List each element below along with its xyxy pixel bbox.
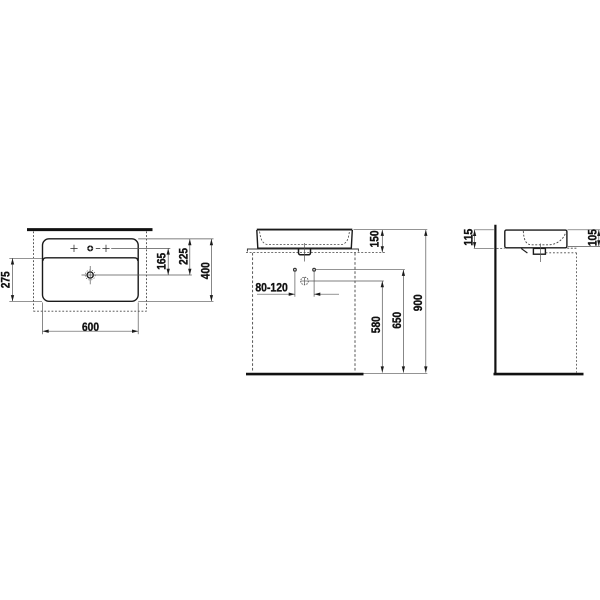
svg-text:105: 105	[585, 229, 599, 246]
svg-text:165: 165	[155, 253, 169, 270]
svg-text:600: 600	[82, 320, 99, 334]
svg-text:80-120: 80-120	[255, 281, 288, 295]
svg-text:275: 275	[0, 271, 13, 288]
svg-text:900: 900	[411, 294, 425, 311]
svg-text:115: 115	[461, 228, 475, 245]
svg-text:150: 150	[368, 230, 382, 247]
svg-text:400: 400	[199, 262, 213, 279]
svg-text:650: 650	[390, 312, 404, 329]
svg-text:580: 580	[369, 316, 383, 333]
svg-text:225: 225	[177, 248, 191, 265]
